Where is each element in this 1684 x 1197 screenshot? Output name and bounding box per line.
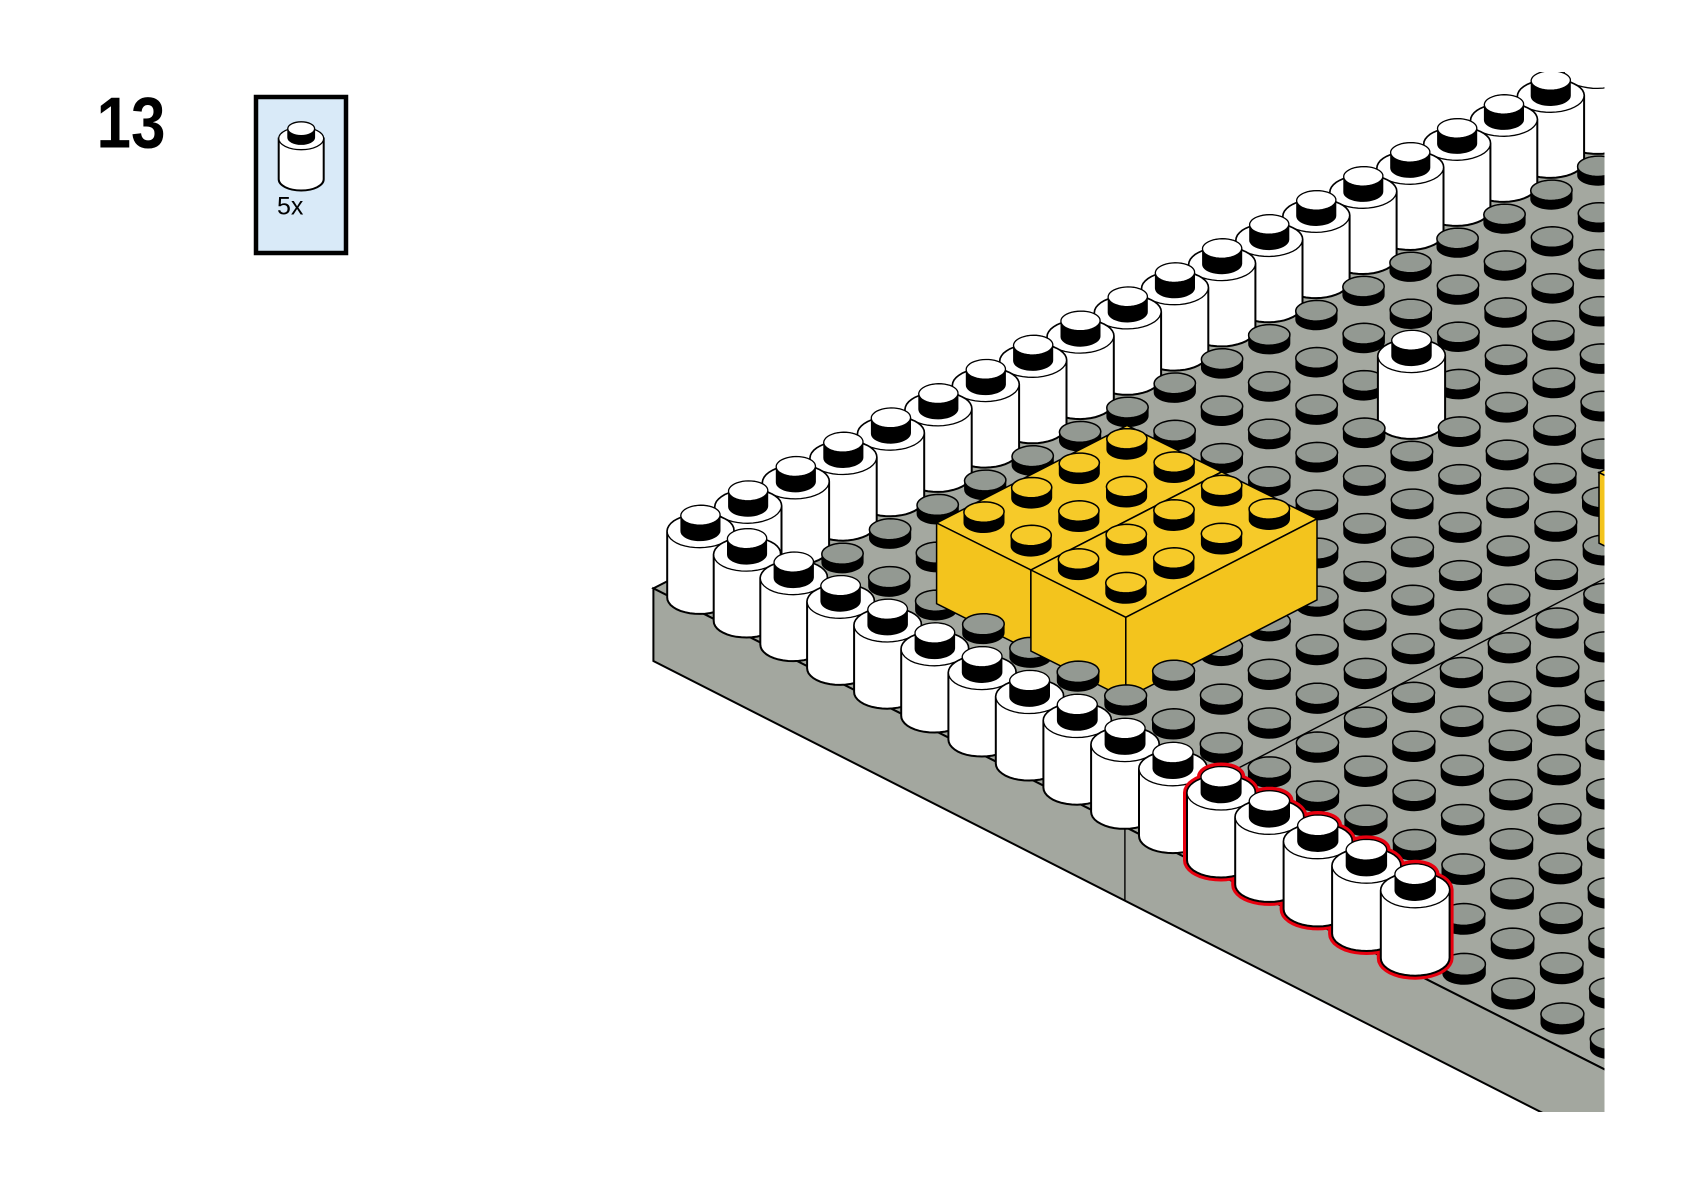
svg-text:13: 13: [97, 84, 166, 164]
svg-text:5x: 5x: [277, 193, 304, 221]
